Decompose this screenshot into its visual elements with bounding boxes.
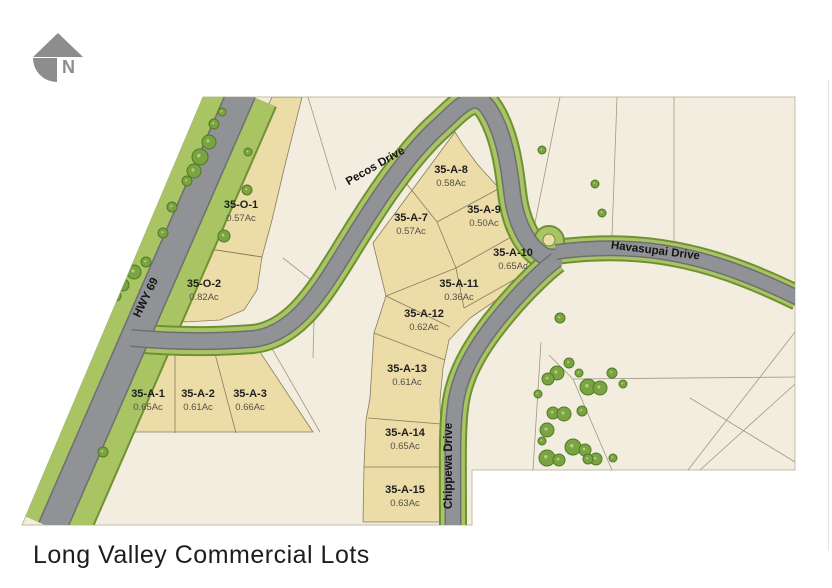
lot-id: 35-A-13 — [387, 363, 427, 375]
lot-acreage: 0.57Ac — [226, 213, 256, 224]
tree-icon — [540, 423, 554, 437]
tree-icon — [187, 164, 201, 178]
lot-id: 35-A-2 — [181, 388, 215, 400]
tree-icon — [565, 439, 581, 455]
tree-icon — [609, 454, 617, 462]
lot-acreage: 0.50Ac — [469, 218, 499, 229]
tree-icon — [242, 185, 252, 195]
tree-icon — [209, 119, 219, 129]
north-arrow-icon: N — [33, 33, 83, 82]
lot-acreage: 0.61Ac — [183, 402, 213, 413]
lot-id: 35-A-11 — [439, 278, 478, 290]
tree-icon — [127, 265, 141, 279]
lot-acreage: 0.61Ac — [392, 377, 422, 388]
lot-id: 35-A-8 — [434, 164, 468, 176]
lot-id: 35-A-9 — [467, 204, 501, 216]
lot-id: 35-A-3 — [233, 388, 267, 400]
lot-acreage: 0.57Ac — [396, 226, 426, 237]
north-label: N — [62, 57, 75, 77]
tree-icon — [141, 257, 151, 267]
page-title: Long Valley Commercial Lots — [33, 541, 370, 570]
tree-icon — [98, 447, 108, 457]
tree-icon — [619, 380, 627, 388]
tree-icon — [583, 454, 593, 464]
tree-icon — [158, 228, 168, 238]
lot-id: 35-A-15 — [385, 484, 425, 496]
tree-icon — [182, 176, 192, 186]
tree-icon — [538, 437, 546, 445]
tree-icon — [607, 368, 617, 378]
tree-icon — [244, 148, 252, 156]
lot-id: 35-A-10 — [493, 247, 533, 259]
lot-acreage: 0.63Ac — [390, 498, 420, 509]
tree-icon — [564, 358, 574, 368]
road-label-chippewa-drive: Chippewa Drive — [443, 423, 455, 509]
lot-id: 35-A-1 — [131, 388, 165, 400]
tree-icon — [577, 406, 587, 416]
lot-acreage: 0.66Ac — [235, 402, 265, 413]
tree-icon — [192, 149, 208, 165]
tree-icon — [591, 180, 599, 188]
page-edge-line — [828, 80, 829, 550]
lot-acreage: 0.82Ac — [189, 292, 219, 303]
tree-icon — [218, 230, 230, 242]
north-arrow-triangle — [33, 33, 83, 57]
tree-icon — [575, 369, 583, 377]
tree-icon — [534, 390, 542, 398]
north-arrow-pie — [33, 58, 57, 82]
junction-island-center — [543, 234, 555, 246]
tree-icon — [218, 108, 226, 116]
lot-acreage: 0.65Ac — [498, 261, 528, 272]
tree-icon — [111, 291, 121, 301]
tree-icon — [202, 135, 216, 149]
tree-icon — [538, 146, 546, 154]
tree-icon — [542, 373, 554, 385]
tree-icon — [539, 450, 555, 466]
lot-id: 35-O-2 — [187, 278, 221, 290]
lot-id: 35-A-7 — [394, 212, 428, 224]
tree-icon — [167, 202, 177, 212]
lot-id: 35-A-14 — [385, 427, 426, 439]
lot-acreage: 0.65Ac — [133, 402, 163, 413]
tree-icon — [593, 381, 607, 395]
lot-id: 35-A-12 — [404, 308, 444, 320]
lot-id: 35-O-1 — [224, 199, 258, 211]
map-page: N — [0, 0, 832, 588]
lot-acreage: 0.58Ac — [436, 178, 466, 189]
tree-icon — [557, 407, 571, 421]
map-svg: N — [0, 0, 832, 588]
lot-acreage: 0.62Ac — [409, 322, 439, 333]
lot-acreage: 0.65Ac — [390, 441, 420, 452]
tree-icon — [598, 209, 606, 217]
tree-icon — [553, 454, 565, 466]
tree-icon — [555, 313, 565, 323]
lot-acreage: 0.36Ac — [444, 292, 474, 303]
